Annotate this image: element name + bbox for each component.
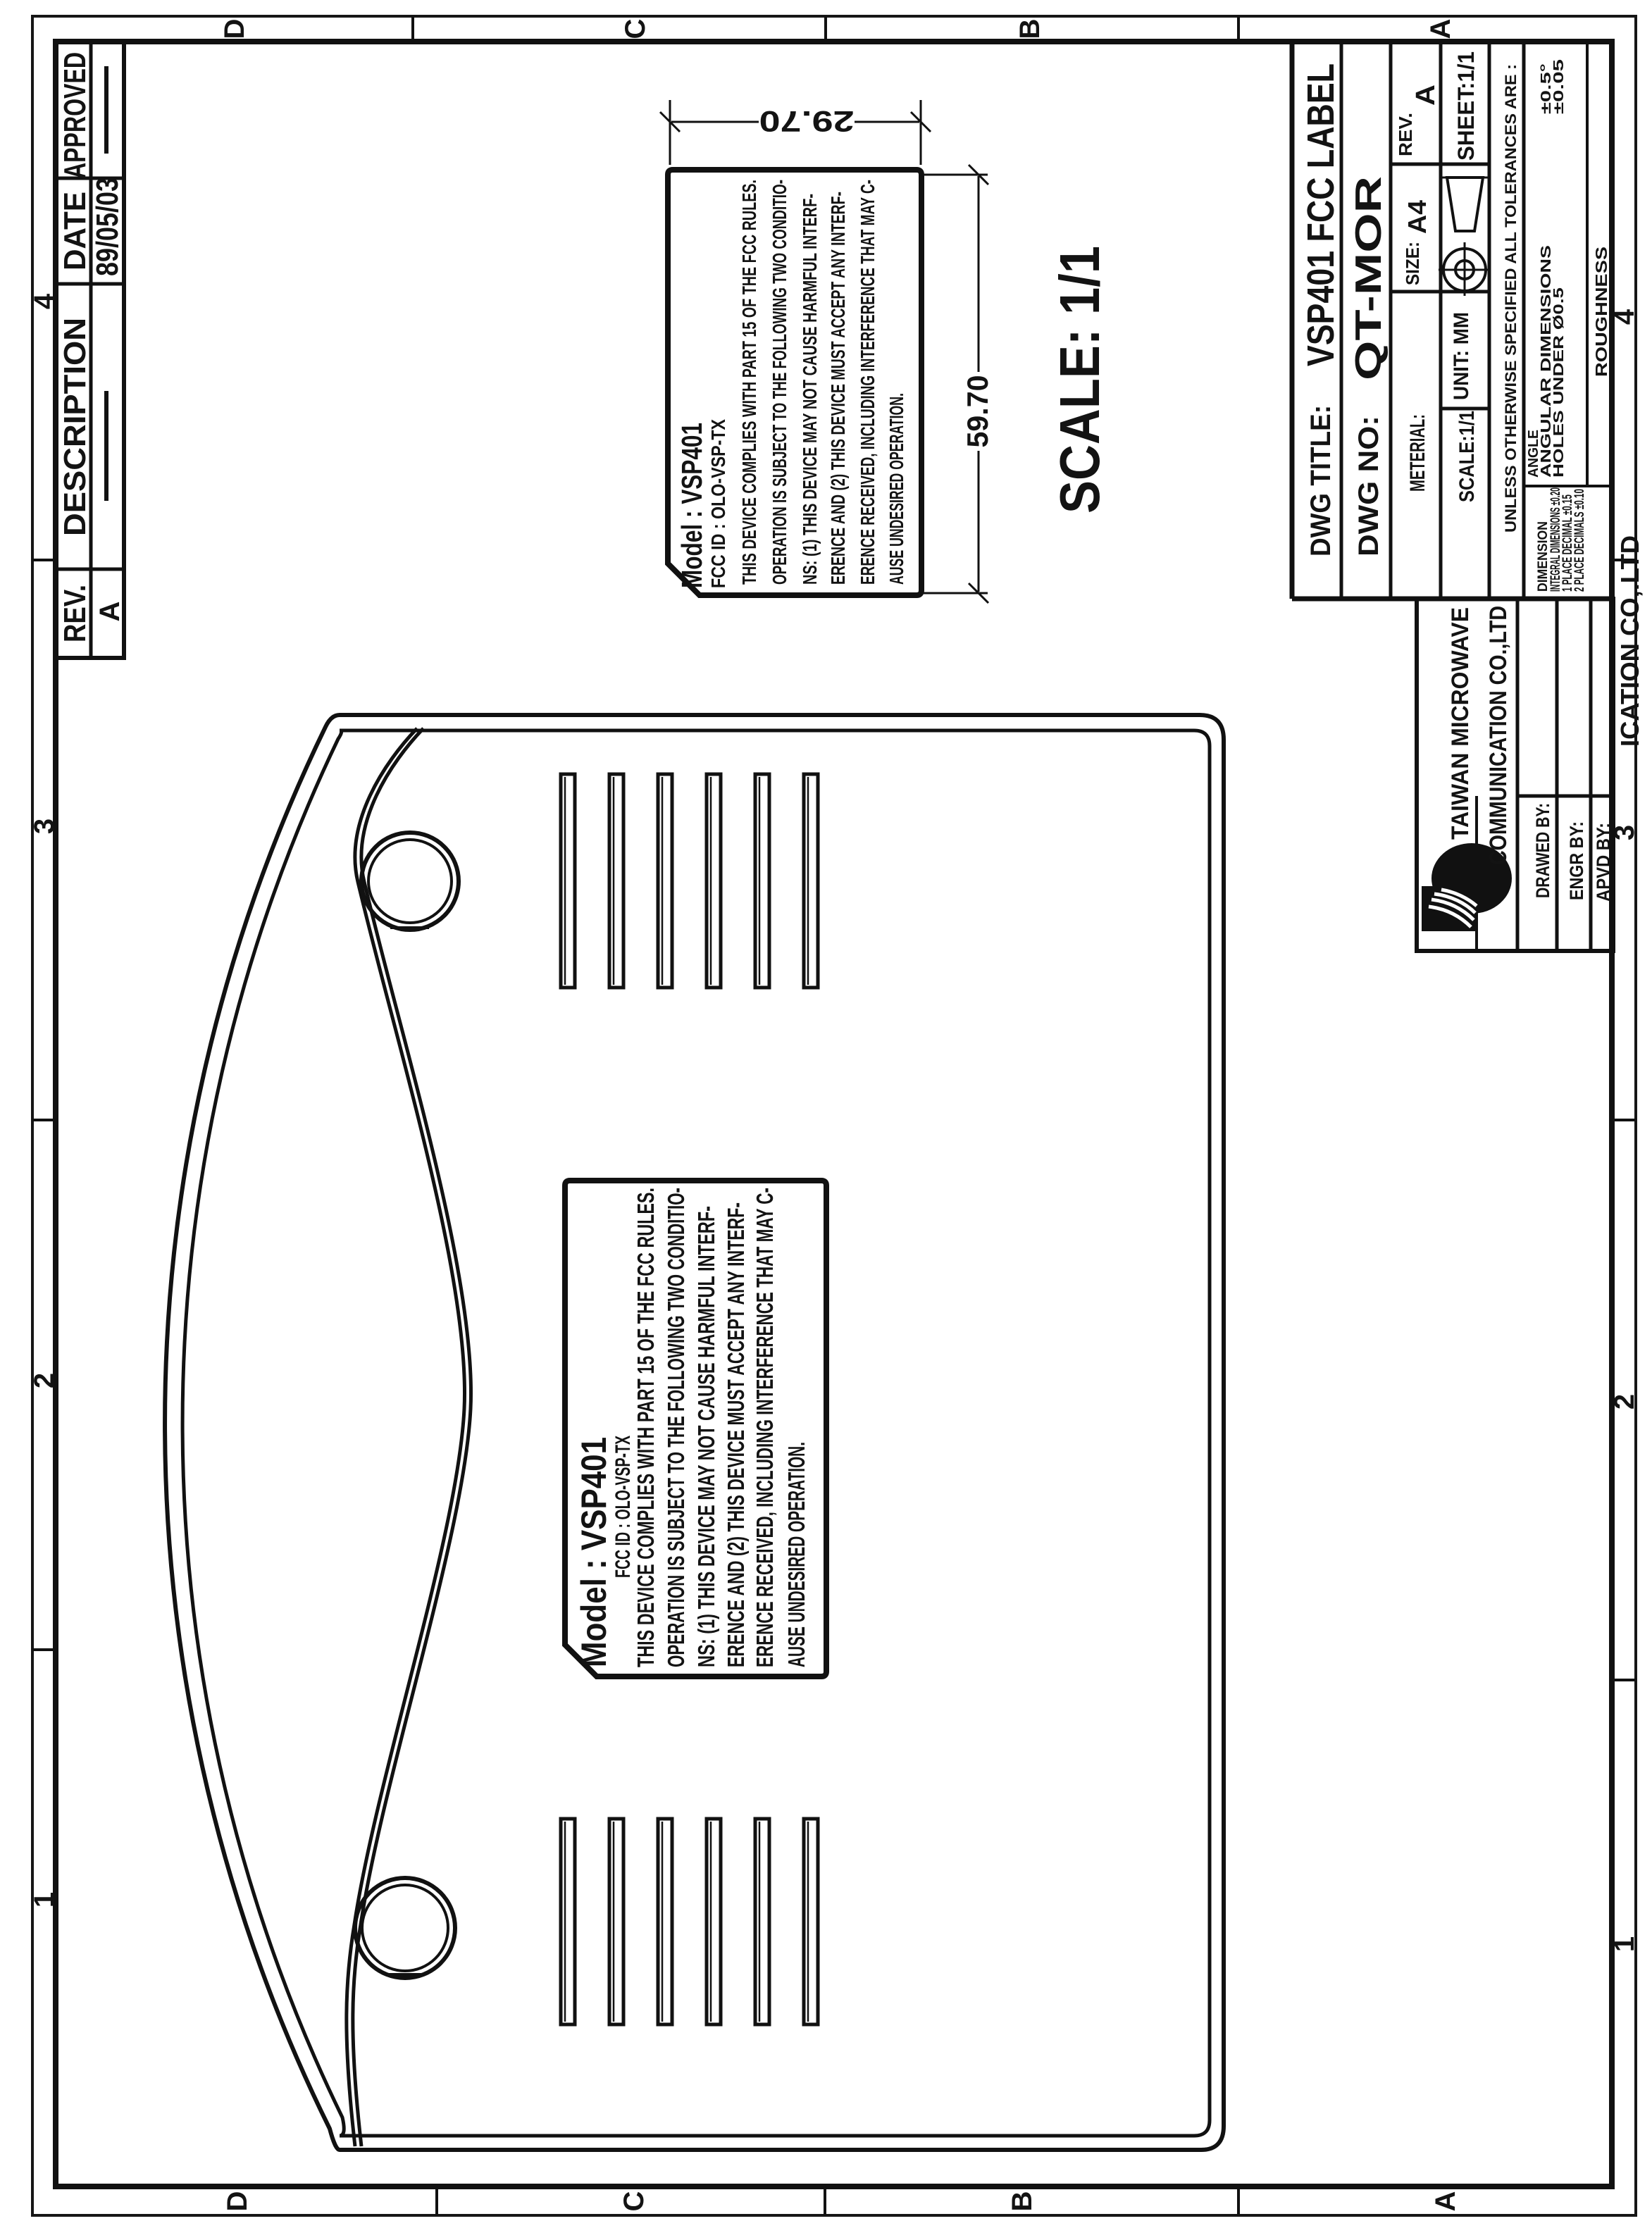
svg-text:A: A xyxy=(1425,19,1456,39)
svg-text:89/05/03: 89/05/03 xyxy=(90,178,125,276)
svg-text:SCALE:1/1: SCALE:1/1 xyxy=(1455,411,1479,502)
svg-text:ERENCE AND (2) THIS DEVICE MUS: ERENCE AND (2) THIS DEVICE MUST ACCEPT A… xyxy=(827,192,849,585)
svg-text:3: 3 xyxy=(29,819,60,834)
svg-text:C: C xyxy=(619,2191,650,2212)
svg-text:2 PLACE DECIMALS ±0.10: 2 PLACE DECIMALS ±0.10 xyxy=(1572,489,1587,592)
svg-text:FCC ID : OLO-VSP-TX: FCC ID : OLO-VSP-TX xyxy=(707,419,729,588)
svg-text:DWG TITLE:: DWG TITLE: xyxy=(1305,405,1336,556)
svg-text:DWG NO:: DWG NO: xyxy=(1353,416,1384,556)
svg-text:VSP401 FCC LABEL: VSP401 FCC LABEL xyxy=(1300,63,1342,366)
svg-text:ERENCE RECEIVED, INCLUDING INT: ERENCE RECEIVED, INCLUDING INTERFERENCE … xyxy=(857,180,878,585)
svg-text:REV.: REV. xyxy=(1395,113,1416,156)
svg-text:Model : VSP401: Model : VSP401 xyxy=(676,423,708,588)
svg-text:ERENCE AND (2) THIS DEVICE MUS: ERENCE AND (2) THIS DEVICE MUST ACCEPT A… xyxy=(723,1202,749,1667)
svg-text:DATE: DATE xyxy=(58,192,92,270)
svg-text:REV.: REV. xyxy=(58,585,92,642)
svg-text:ERENCE RECEIVED, INCLUDING INT: ERENCE RECEIVED, INCLUDING INTERFERENCE … xyxy=(752,1188,778,1667)
svg-text:HOLES UNDER Ø0.5: HOLES UNDER Ø0.5 xyxy=(1551,287,1567,478)
svg-text:OPERATION IS SUBJECT TO THE FO: OPERATION IS SUBJECT TO THE FOLLOWING TW… xyxy=(769,180,790,585)
svg-text:1: 1 xyxy=(29,1892,60,1908)
svg-text:DESCRIPTION: DESCRIPTION xyxy=(58,318,92,536)
svg-text:APPROVED: APPROVED xyxy=(58,52,92,179)
svg-text:QT-MOR: QT-MOR xyxy=(1348,176,1389,380)
svg-text:OPERATION IS SUBJECT TO THE FO: OPERATION IS SUBJECT TO THE FOLLOWING TW… xyxy=(663,1188,689,1667)
svg-text:±0.05: ±0.05 xyxy=(1551,59,1567,114)
svg-text:TAIWAN MICROWAVE: TAIWAN MICROWAVE xyxy=(1447,607,1474,840)
svg-text:AUSE UNDESIRED OPERATION.: AUSE UNDESIRED OPERATION. xyxy=(886,393,907,585)
svg-text:APVD BY:: APVD BY: xyxy=(1593,823,1614,902)
svg-text:ROUGHNESS: ROUGHNESS xyxy=(1592,247,1610,377)
svg-text:ICATION CO,.LTD: ICATION CO,.LTD xyxy=(1615,535,1644,747)
svg-text:COMMUNICATION CO.,LTD: COMMUNICATION CO.,LTD xyxy=(1485,606,1512,865)
svg-text:SCALE: 1/1: SCALE: 1/1 xyxy=(1048,246,1111,514)
svg-text:4: 4 xyxy=(1609,309,1640,325)
svg-text:NS: (1) THIS DEVICE MAY NOT CA: NS: (1) THIS DEVICE MAY NOT CAUSE HARMFU… xyxy=(693,1206,719,1667)
svg-text:Model : VSP401: Model : VSP401 xyxy=(574,1437,614,1667)
svg-text:DRAWED BY:: DRAWED BY: xyxy=(1532,803,1553,898)
svg-text:UNIT: MM: UNIT: MM xyxy=(1450,312,1473,400)
svg-text:1: 1 xyxy=(1609,1936,1640,1952)
svg-text:2: 2 xyxy=(29,1373,60,1388)
svg-text:59.70: 59.70 xyxy=(961,375,994,448)
svg-text:SHEET:1/1: SHEET:1/1 xyxy=(1453,51,1479,161)
svg-text:29.70: 29.70 xyxy=(759,105,855,138)
svg-text:ENGR BY:: ENGR BY: xyxy=(1566,821,1587,900)
svg-text:SIZE:: SIZE: xyxy=(1402,242,1423,285)
svg-text:NS: (1) THIS DEVICE MAY NOT CA: NS: (1) THIS DEVICE MAY NOT CAUSE HARMFU… xyxy=(799,194,821,585)
svg-text:A: A xyxy=(94,602,125,622)
svg-text:2: 2 xyxy=(1609,1394,1640,1410)
svg-text:A4: A4 xyxy=(1403,200,1431,234)
svg-text:A: A xyxy=(1411,85,1441,106)
svg-text:B: B xyxy=(1014,19,1045,39)
svg-text:FCC ID : OLO-VSP-TX: FCC ID : OLO-VSP-TX xyxy=(611,1436,635,1578)
svg-text:D: D xyxy=(219,19,250,39)
svg-text:D: D xyxy=(222,2191,253,2212)
svg-text:THIS DEVICE COMPLIES WITH PART: THIS DEVICE COMPLIES WITH PART 15 OF THE… xyxy=(738,180,760,585)
svg-text:B: B xyxy=(1007,2191,1038,2212)
svg-text:UNLESS OTHERWISE SPECIFIED ALL: UNLESS OTHERWISE SPECIFIED ALL TOLERANCE… xyxy=(1502,64,1520,533)
svg-text:METERIAL:: METERIAL: xyxy=(1406,414,1429,492)
svg-text:AUSE UNDESIRED OPERATION.: AUSE UNDESIRED OPERATION. xyxy=(783,1442,809,1667)
svg-text:A: A xyxy=(1430,2191,1461,2212)
svg-text:C: C xyxy=(620,19,651,39)
svg-text:THIS DEVICE COMPLIES WITH PART: THIS DEVICE COMPLIES WITH PART 15 OF THE… xyxy=(633,1188,659,1667)
